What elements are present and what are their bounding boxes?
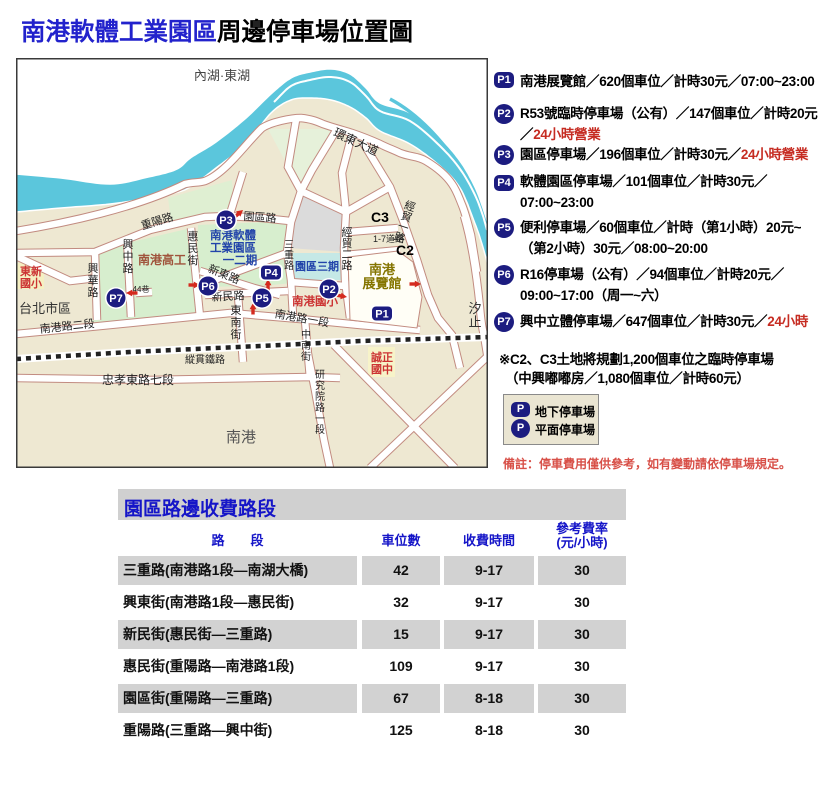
svg-text:三重路: 三重路	[284, 240, 294, 272]
svg-text:惠民街: 惠民街	[188, 229, 199, 267]
svg-text:東南街: 東南街	[231, 304, 242, 341]
svg-text:P3: P3	[219, 215, 232, 227]
svg-text:P1: P1	[375, 309, 388, 321]
svg-text:C2: C2	[396, 242, 414, 258]
svg-text:汐止: 汐止	[468, 301, 481, 330]
svg-text:南港高工: 南港高工	[138, 252, 186, 267]
svg-text:興華路: 興華路	[88, 262, 99, 299]
svg-text:興中路: 興中路	[123, 238, 134, 275]
svg-text:南港: 南港	[226, 429, 256, 446]
svg-text:內湖·東湖: 內湖·東湖	[194, 68, 250, 83]
svg-text:忠孝東路七段: 忠孝東路七段	[102, 372, 174, 387]
svg-text:P6: P6	[201, 281, 214, 293]
svg-text:P2: P2	[322, 284, 335, 296]
svg-text:P5: P5	[255, 293, 268, 305]
svg-text:經貿二路: 經貿二路	[342, 225, 353, 272]
svg-text:園區路: 園區路	[243, 210, 277, 225]
svg-text:P7: P7	[109, 293, 122, 305]
svg-text:園區三期: 園區三期	[295, 259, 339, 273]
svg-text:縱貫鐵路: 縱貫鐵路	[185, 353, 225, 366]
svg-text:台北市區: 台北市區	[19, 301, 71, 316]
svg-text:P4: P4	[264, 268, 278, 280]
svg-text:誠正國中: 誠正國中	[371, 350, 393, 376]
svg-text:中南街: 中南街	[301, 328, 311, 363]
svg-text:東新國小: 東新國小	[20, 264, 42, 290]
svg-text:研究院路一段: 研究院路一段	[315, 369, 325, 436]
svg-text:C3: C3	[371, 209, 389, 225]
